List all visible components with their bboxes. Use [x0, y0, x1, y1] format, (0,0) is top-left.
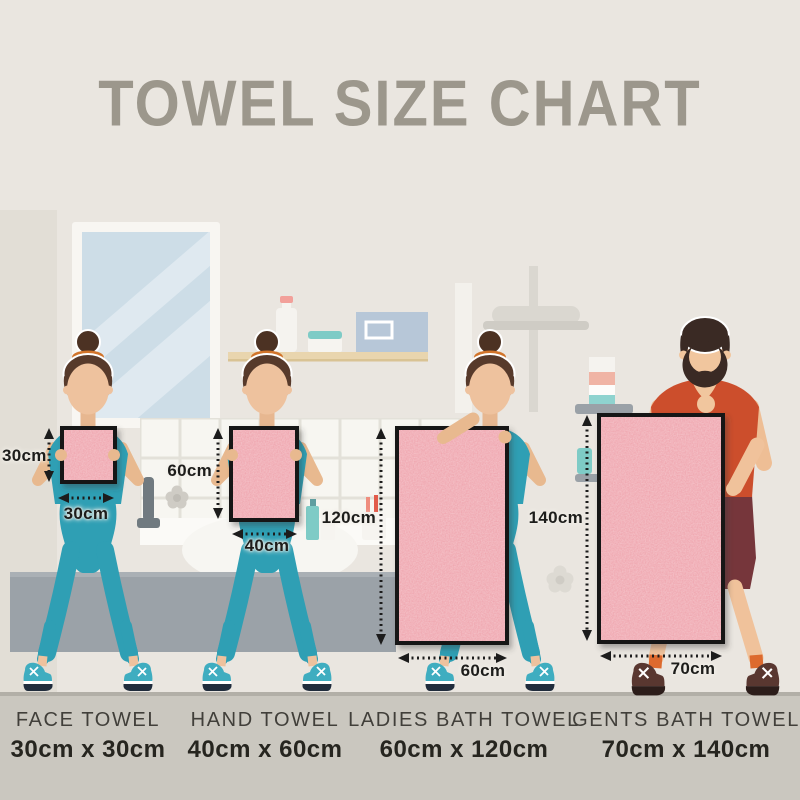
hand-towel-width-label: 40cm	[237, 536, 297, 556]
face-towel-size: 30cm x 30cm	[11, 736, 166, 764]
hand	[226, 449, 238, 461]
gents-bath-towel-graphic	[597, 413, 725, 644]
page-title: TOWEL SIZE CHART	[0, 66, 800, 141]
gents-bath-towel-caption: GENTS BATH TOWEL 70cm x 140cm	[572, 709, 800, 764]
ladies-bath-towel-graphic	[395, 426, 509, 645]
gents-towel-width-label: 70cm	[663, 659, 723, 679]
hand-towel-graphic	[229, 426, 299, 522]
hand	[55, 449, 67, 461]
hand	[108, 449, 120, 461]
face-towel-width-label: 30cm	[56, 504, 116, 524]
hand	[499, 431, 512, 444]
face-towel-caption: FACE TOWEL 30cm x 30cm	[11, 709, 166, 764]
hand	[726, 482, 740, 496]
hand	[437, 432, 449, 444]
hand	[290, 449, 302, 461]
floor-shadow-line	[0, 692, 800, 696]
face-towel-height-label: 30cm	[2, 446, 45, 466]
ladies-towel-width-label: 60cm	[453, 661, 513, 681]
cup	[589, 357, 615, 372]
towel-size-chart-poster: TOWEL SIZE CHART 30cm 30cm 60cm 40cm 120…	[0, 0, 800, 800]
hand-towel-height-label: 60cm	[160, 461, 212, 481]
hand-towel-caption: HAND TOWEL 40cm x 60cm	[188, 709, 343, 764]
hand-towel-name: HAND TOWEL	[188, 709, 343, 732]
jar	[308, 338, 342, 352]
face-towel-name: FACE TOWEL	[11, 709, 166, 732]
gents-bath-towel-size: 70cm x 140cm	[572, 736, 800, 764]
ladies-bath-towel-size: 60cm x 120cm	[348, 736, 580, 764]
ladies-bath-towel-name: LADIES BATH TOWEL	[348, 709, 580, 732]
ladies-bath-towel-caption: LADIES BATH TOWEL 60cm x 120cm	[348, 709, 580, 764]
gents-bath-towel-name: GENTS BATH TOWEL	[572, 709, 800, 732]
hand-towel-size: 40cm x 60cm	[188, 736, 343, 764]
gents-towel-height-label: 140cm	[523, 508, 583, 528]
ladies-towel-height-label: 120cm	[316, 508, 376, 528]
